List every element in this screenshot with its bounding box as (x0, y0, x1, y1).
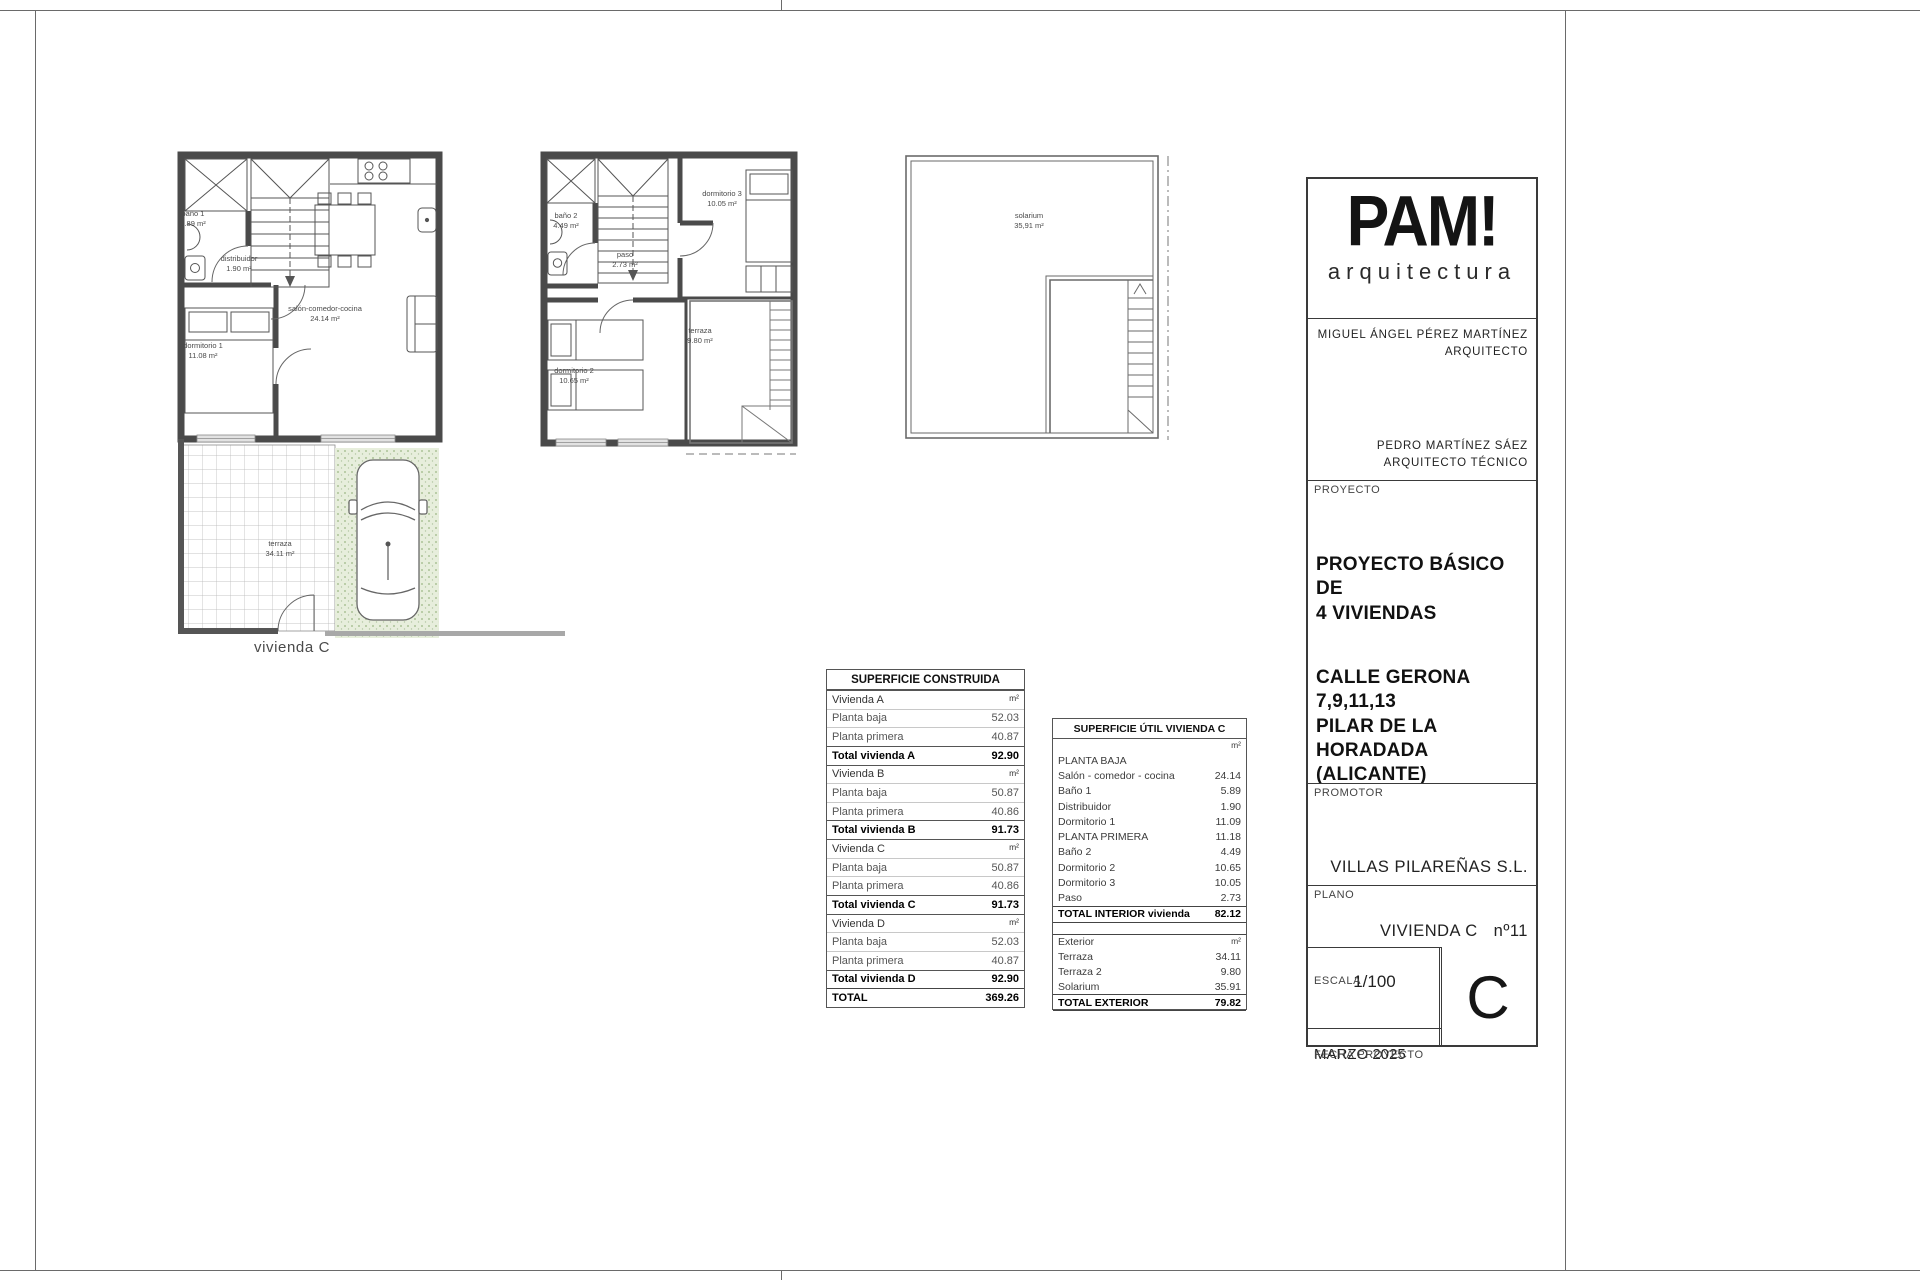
row-value: 40.86 (991, 806, 1019, 818)
row-value: 11.18 (1216, 831, 1242, 843)
fecha-label: FECHA PROYECTO (1314, 1049, 1424, 1061)
row-label: Baño 1 (1058, 785, 1091, 797)
table-gap (1053, 923, 1246, 934)
row-label: Total vivienda B (832, 824, 916, 836)
table-row: Total vivienda D 92.90 (827, 970, 1024, 989)
row-label: Vivienda C (832, 843, 885, 855)
fecha-box: FECHA PROYECTO MARZO 2025 (1308, 1046, 1441, 1088)
row-value: 35.91 (1215, 981, 1241, 993)
row-value: m² (1009, 840, 1019, 852)
row-label: Terraza (1058, 951, 1093, 963)
table-row: Dormitorio 2 10.65 (1053, 860, 1246, 875)
row-value: 82.12 (1215, 908, 1241, 920)
table-row: Planta baja 52.03 (827, 932, 1024, 951)
table-row: Salón - comedor - cocina 24.14 (1053, 769, 1246, 784)
row-value: 40.87 (991, 731, 1019, 743)
proyecto-label: PROYECTO (1314, 484, 1380, 496)
table-superficie-util: SUPERFICIE ÚTIL VIVIENDA C m² PLANTA BAJ… (1052, 718, 1247, 1010)
row-value: 369.26 (985, 992, 1019, 1004)
row-value: 92.90 (991, 750, 1019, 762)
row-label: Salón - comedor - cocina (1058, 770, 1175, 782)
table-superficie-construida: SUPERFICIE CONSTRUIDA Vivienda A m² Plan… (826, 669, 1025, 1008)
table-row: Dormitorio 3 10.05 (1053, 875, 1246, 890)
row-label: Dormitorio 3 (1058, 877, 1115, 889)
solarium-walls (906, 156, 1158, 438)
table-row: PLANTA BAJA (1053, 753, 1246, 768)
proyecto-title: PROYECTO BÁSICO DE 4 VIVIENDAS (1308, 553, 1536, 626)
row-label: Planta baja (832, 862, 887, 874)
row-value: 10.65 (1215, 862, 1241, 874)
table-row: Planta baja 50.87 (827, 783, 1024, 802)
architect-1: MIGUEL ÁNGEL PÉREZ MARTÍNEZ ARQUITECTO (1318, 327, 1528, 362)
escala-fecha-section: ESCALA 1/100 FECHA PROYECTO MARZO 2025 (1308, 947, 1442, 1047)
frame-right (1565, 10, 1566, 1270)
row-value: 91.73 (991, 899, 1019, 911)
table-row: Dormitorio 1 11.09 (1053, 814, 1246, 829)
row-label: Total vivienda A (832, 750, 915, 762)
table-row: Vivienda D m² (827, 914, 1024, 933)
table-row: PLANTA PRIMERA 11.18 (1053, 830, 1246, 845)
table-row: Total vivienda A 92.90 (827, 746, 1024, 765)
row-value: m² (1009, 766, 1019, 778)
sofa (407, 296, 437, 352)
row-label: Baño 2 (1058, 846, 1091, 858)
shower-box (185, 159, 247, 211)
table-row: Planta primera 40.87 (827, 727, 1024, 746)
row-label: Planta primera (832, 955, 904, 967)
drawing-sheet: { "sheet": { "caption_ground": "vivienda… (0, 0, 1920, 1280)
row-label: Vivienda B (832, 768, 884, 780)
car-top-view (349, 460, 427, 620)
row-value: m² (1009, 915, 1019, 927)
room-label-salon: salón-comedor-cocina 24.14 m² (264, 304, 386, 324)
row-label: Vivienda A (832, 694, 884, 706)
room-label-paso: paso 2.73 m² (585, 250, 665, 270)
row-value: 79.82 (1215, 997, 1241, 1009)
row-label: Planta baja (832, 936, 887, 948)
table-row: Vivienda C m² (827, 839, 1024, 858)
plan-caption-vivienda-c: vivienda C (227, 639, 357, 656)
shower-box (547, 159, 595, 203)
row-label: Exterior (1058, 936, 1094, 948)
row-value: 91.73 (991, 824, 1019, 836)
escala-label: ESCALA (1314, 975, 1361, 987)
row-value: 50.87 (991, 862, 1019, 874)
sheet-letter: C (1439, 947, 1536, 1047)
row-value: m² (1009, 691, 1019, 703)
escala-box: ESCALA 1/100 (1308, 972, 1441, 1029)
table-row: Planta baja 52.03 (827, 709, 1024, 728)
room-label-bano2: baño 2 4.49 m² (526, 211, 606, 231)
room-label-dormitorio1: dormitorio 1 11.08 m² (160, 341, 246, 361)
table-row: Exterior m² (1053, 934, 1246, 950)
solarium-stairs (1128, 280, 1153, 433)
pam-logo-subtext: arquitectura (1308, 259, 1536, 285)
table-row: Terraza 34.11 (1053, 950, 1246, 965)
table-title: SUPERFICIE CONSTRUIDA (827, 670, 1024, 690)
table-body-exterior: Exterior m² Terraza 34.11 Terraza 2 9.80… (1053, 934, 1246, 1011)
row-value: 92.90 (991, 973, 1019, 985)
row-label: Solarium (1058, 981, 1099, 993)
table-row: TOTAL 369.26 (827, 988, 1024, 1007)
row-label: Dormitorio 2 (1058, 862, 1115, 874)
trim-line-bottom (0, 1270, 1920, 1271)
table-row: Planta primera 40.86 (827, 802, 1024, 821)
title-block: PAM! arquitectura MIGUEL ÁNGEL PÉREZ MAR… (1306, 177, 1538, 1047)
row-label: Terraza 2 (1058, 966, 1102, 978)
room-label-dormitorio2: dormitorio 2 10.65 m² (524, 366, 624, 386)
row-value: 11.09 (1216, 816, 1242, 828)
row-label: Distribuidor (1058, 801, 1111, 813)
row-label: Planta baja (832, 712, 887, 724)
plano-section: PLANO VIVIENDA C nº11 (1308, 885, 1536, 947)
partition-walls (181, 211, 276, 439)
dining-table (315, 193, 375, 267)
table-body-interior: m² PLANTA BAJA Salón - comedor - cocina … (1053, 739, 1246, 923)
row-label: Total vivienda D (832, 973, 916, 985)
pam-logo: PAM! (1308, 185, 1536, 257)
row-value: 2.73 (1221, 892, 1241, 904)
row-label: Planta primera (832, 731, 904, 743)
row-label: Planta baja (832, 787, 887, 799)
frame-left (35, 10, 36, 1270)
row-label: Paso (1058, 892, 1082, 904)
table-row: Planta primera 40.86 (827, 876, 1024, 895)
promotor-label: PROMOTOR (1314, 787, 1383, 799)
room-label-solarium: solarium 35,91 m² (969, 211, 1089, 231)
table-row: Planta baja 50.87 (827, 858, 1024, 877)
table-row: Solarium 35.91 (1053, 979, 1246, 994)
plano-value: VIVIENDA C nº11 (1380, 922, 1528, 941)
row-value: 40.87 (991, 955, 1019, 967)
promotor-section: PROMOTOR VILLAS PILAREÑAS S.L. (1308, 783, 1536, 885)
row-label: Planta primera (832, 806, 904, 818)
row-label: Planta primera (832, 880, 904, 892)
plano-label: PLANO (1314, 889, 1354, 901)
row-value: 9.80 (1221, 966, 1241, 978)
row-value: 5.89 (1221, 785, 1241, 797)
row-label: TOTAL INTERIOR vivienda (1058, 908, 1190, 920)
table-row: Vivienda B m² (827, 765, 1024, 784)
row-value: 10.05 (1215, 877, 1241, 889)
table-body: Vivienda A m² Planta baja 52.03 Planta p… (827, 690, 1024, 1007)
row-label: Vivienda D (832, 918, 885, 930)
table-row: Baño 1 5.89 (1053, 784, 1246, 799)
table-row: Paso 2.73 (1053, 891, 1246, 906)
row-value: m² (1231, 739, 1241, 750)
room-label-dormitorio3: dormitorio 3 10.05 m² (672, 189, 772, 209)
table-row: m² (1053, 739, 1246, 753)
table-row: Baño 2 4.49 (1053, 845, 1246, 860)
twin-beds (548, 320, 643, 410)
row-label: TOTAL EXTERIOR (1058, 997, 1148, 1009)
row-value: 24.14 (1215, 770, 1241, 782)
promotor-value: VILLAS PILAREÑAS S.L. (1330, 858, 1528, 877)
row-label: PLANTA PRIMERA (1058, 831, 1148, 843)
room-label-terraza: terraza 34.11 m² (238, 539, 322, 559)
proyecto-section: PROYECTO PROYECTO BÁSICO DE 4 VIVIENDAS … (1308, 480, 1536, 783)
room-label-terraza2: terraza 9.80 m² (650, 326, 750, 346)
table-row: Planta primera 40.87 (827, 951, 1024, 970)
table-row: Total vivienda B 91.73 (827, 820, 1024, 839)
trim-tick-top (781, 0, 782, 11)
row-value: 52.03 (991, 712, 1019, 724)
row-label: Total vivienda C (832, 899, 916, 911)
row-label: Dormitorio 1 (1058, 816, 1115, 828)
table-title: SUPERFICIE ÚTIL VIVIENDA C (1053, 719, 1246, 739)
row-value: 4.49 (1221, 846, 1241, 858)
table-row: Distribuidor 1.90 (1053, 799, 1246, 814)
row-value: 1.90 (1221, 801, 1241, 813)
row-label: TOTAL (832, 992, 868, 1004)
architect-2: PEDRO MARTÍNEZ SÁEZ ARQUITECTO TÉCNICO (1377, 438, 1528, 473)
kitchen-stove (330, 159, 437, 232)
room-label-distribuidor: distribuidor 1.90 m² (194, 254, 284, 274)
row-label: PLANTA BAJA (1058, 755, 1127, 767)
table-row: Vivienda A m² (827, 690, 1024, 709)
table-row: Total vivienda C 91.73 (827, 895, 1024, 914)
row-value: 52.03 (991, 936, 1019, 948)
row-value: 50.87 (991, 787, 1019, 799)
row-value: m² (1231, 935, 1241, 946)
room-label-bano1: baño 1 5.89 m² (148, 209, 238, 229)
plan-solarium (900, 148, 1180, 448)
table-row: Terraza 2 9.80 (1053, 965, 1246, 980)
row-value: 40.86 (991, 880, 1019, 892)
terrace-stairs (690, 301, 792, 443)
trim-tick-bottom (781, 1270, 782, 1280)
trim-line-top (0, 10, 1920, 11)
proyecto-address: CALLE GERONA 7,9,11,13 PILAR DE LA HORAD… (1308, 666, 1536, 788)
table-row: TOTAL INTERIOR vivienda 82.12 (1053, 906, 1246, 923)
architects-section: MIGUEL ÁNGEL PÉREZ MARTÍNEZ ARQUITECTO P… (1308, 318, 1536, 480)
table-row: TOTAL EXTERIOR 79.82 (1053, 994, 1246, 1011)
logo-section: PAM! arquitectura (1308, 179, 1536, 318)
row-value: 34.11 (1216, 951, 1242, 963)
